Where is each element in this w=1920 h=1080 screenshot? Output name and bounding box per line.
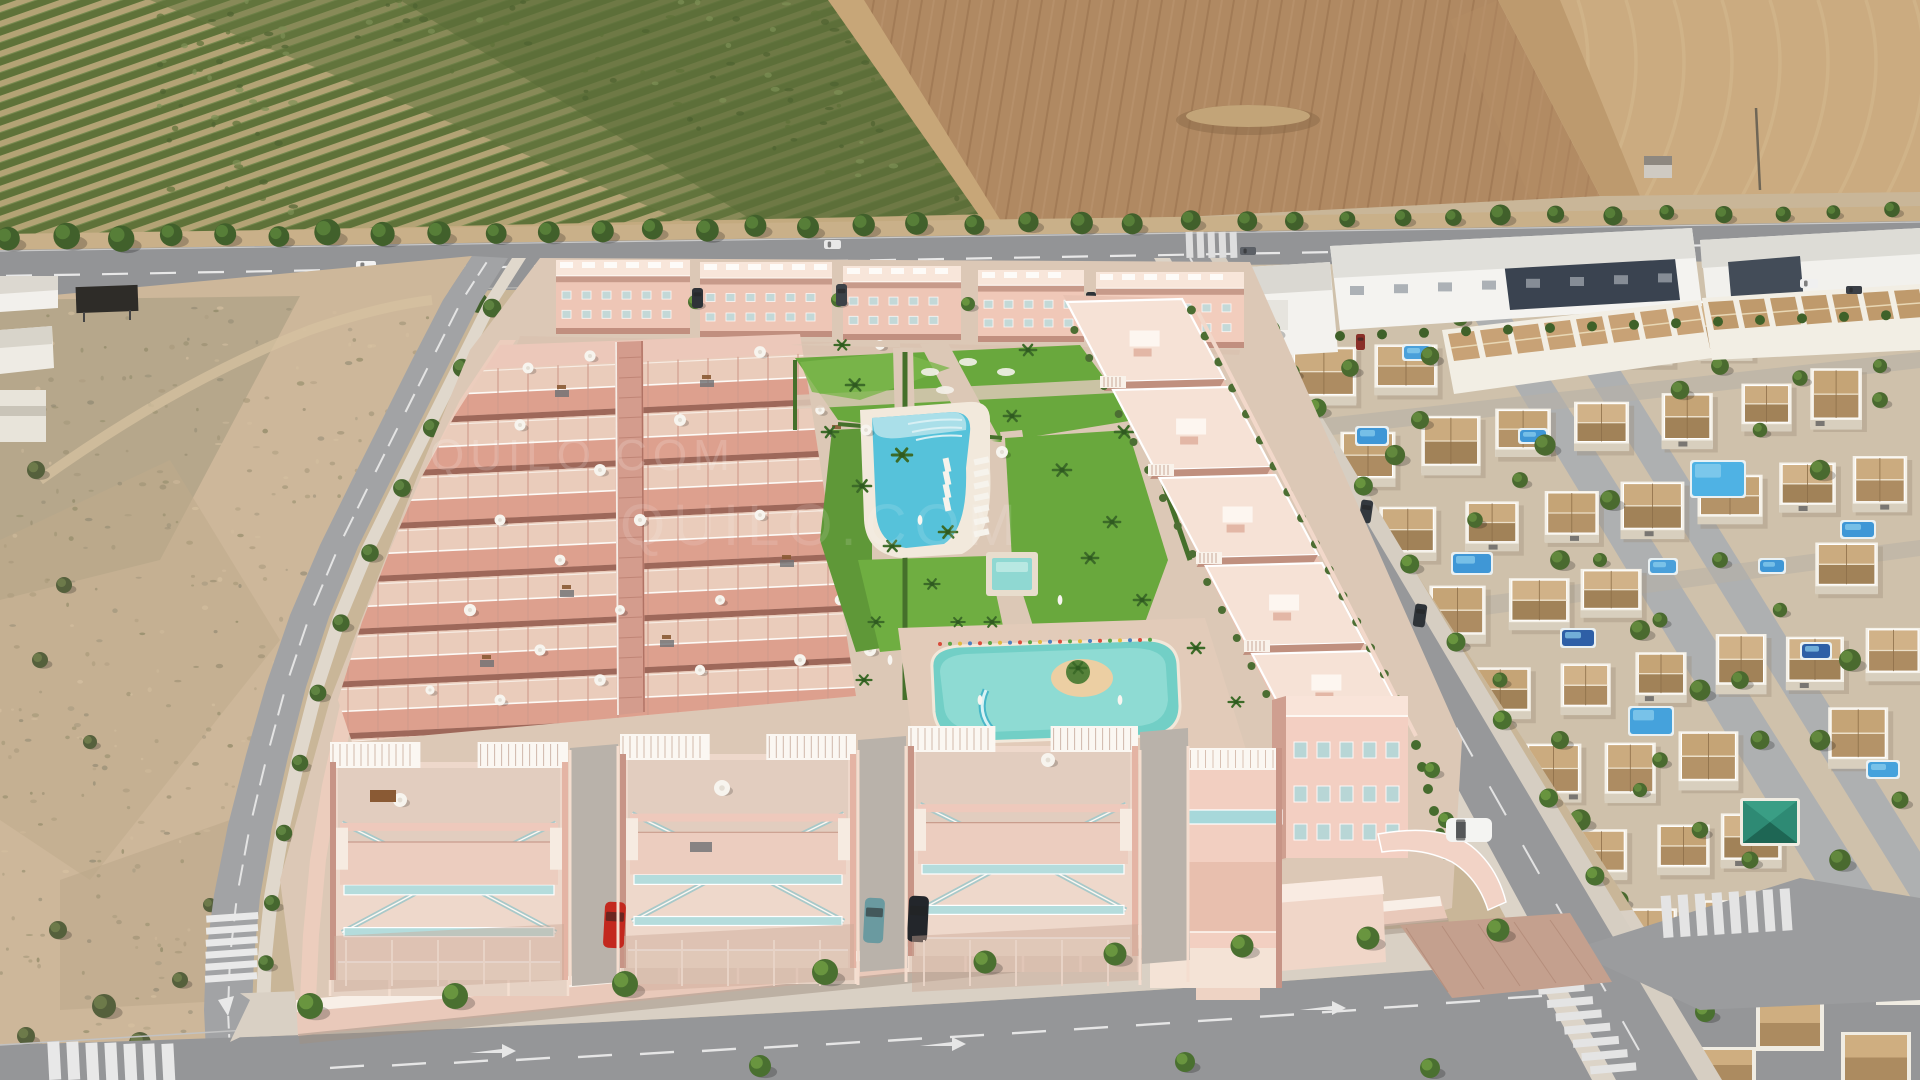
svg-text:QUILO.COM: QUILO.COM (620, 493, 1024, 558)
svg-text:QUILO.COM: QUILO.COM (430, 431, 736, 480)
